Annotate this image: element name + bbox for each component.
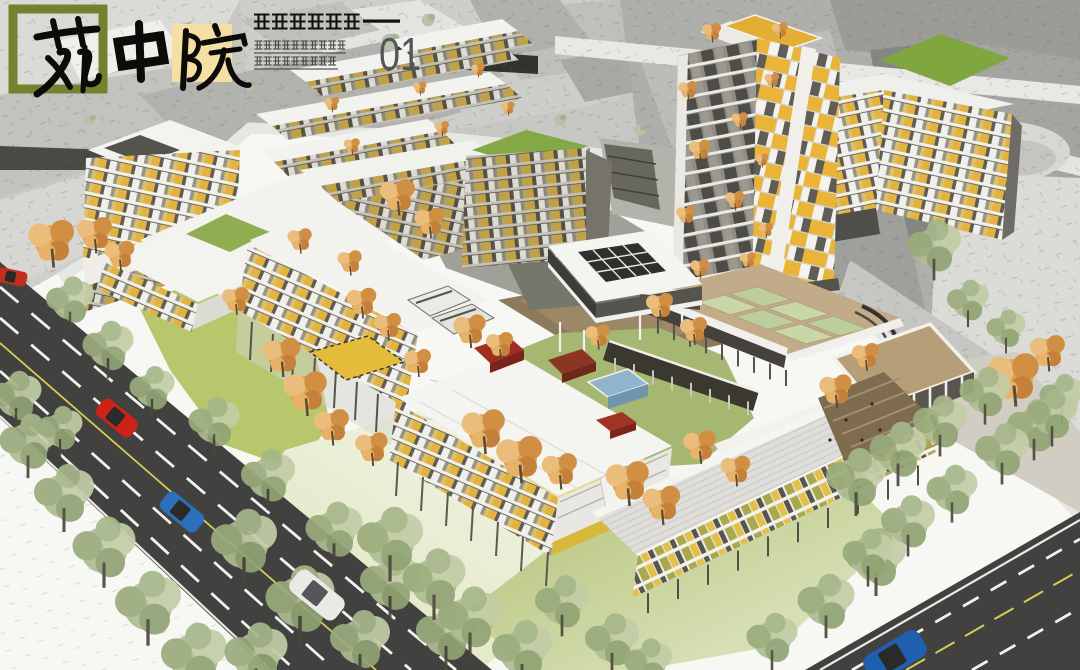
svg-text:01: 01: [379, 28, 421, 80]
